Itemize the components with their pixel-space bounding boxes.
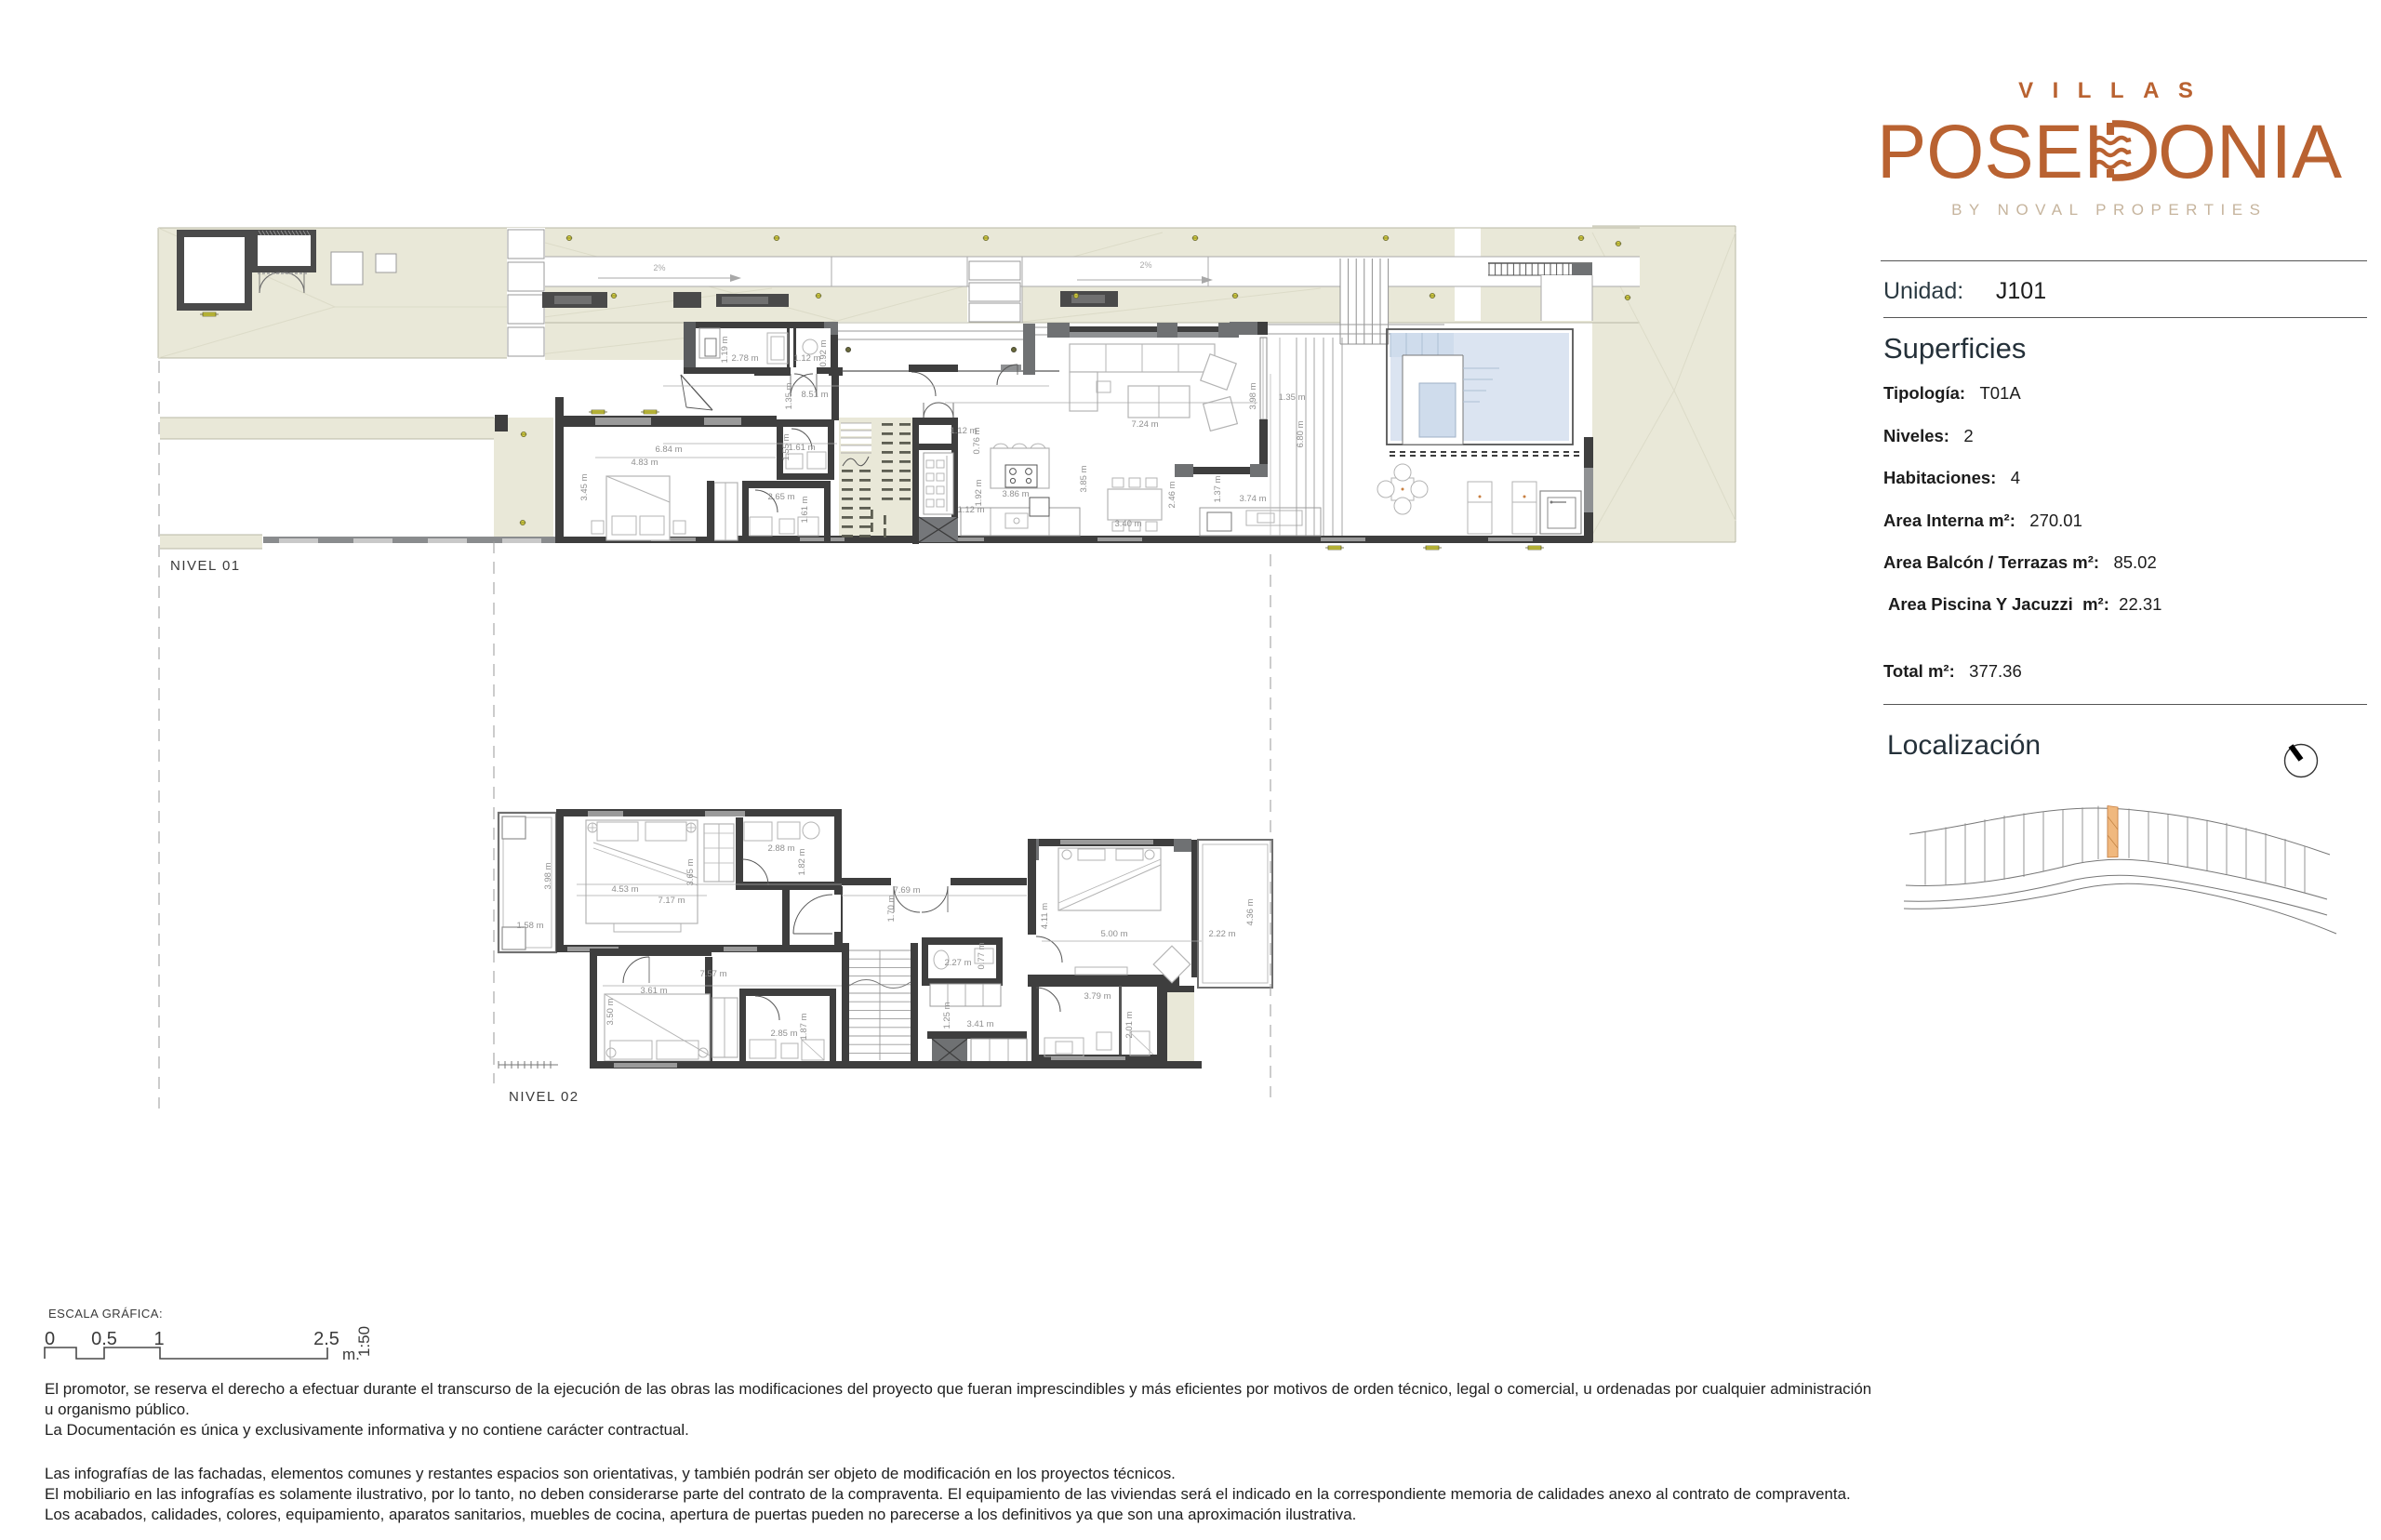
- svg-text:1.55 m: 1.55 m: [781, 433, 791, 460]
- svg-text:2%: 2%: [653, 263, 665, 272]
- svg-text:1.87 m: 1.87 m: [799, 1013, 809, 1040]
- svg-text:3.79 m: 3.79 m: [1084, 991, 1111, 1002]
- svg-text:2%: 2%: [1139, 260, 1151, 270]
- svg-text:3.85 m: 3.85 m: [1079, 465, 1089, 492]
- svg-text:1.12 m: 1.12 m: [950, 426, 977, 436]
- svg-text:2.5: 2.5: [313, 1329, 339, 1349]
- svg-text:3.74 m: 3.74 m: [1239, 494, 1266, 504]
- svg-text:1.61 m: 1.61 m: [800, 496, 810, 523]
- svg-text:1:50: 1:50: [355, 1326, 373, 1357]
- svg-text:7.69 m: 7.69 m: [893, 885, 920, 896]
- svg-text:POSEI: POSEI: [1877, 113, 2104, 192]
- svg-text:2.78 m: 2.78 m: [731, 353, 758, 364]
- svg-text:ONIA: ONIA: [2158, 113, 2342, 192]
- svg-text:0.5: 0.5: [91, 1329, 117, 1349]
- svg-text:0: 0: [45, 1329, 55, 1349]
- svg-text:1.58 m: 1.58 m: [516, 921, 543, 931]
- svg-text:4.83 m: 4.83 m: [631, 458, 658, 468]
- svg-text:2.65 m: 2.65 m: [767, 492, 794, 502]
- svg-text:4.36 m: 4.36 m: [1245, 898, 1256, 925]
- svg-text:1.92 m: 1.92 m: [974, 479, 984, 506]
- svg-text:3.98 m: 3.98 m: [543, 862, 553, 889]
- svg-text:7.57 m: 7.57 m: [699, 969, 726, 979]
- svg-text:3.65 m: 3.65 m: [685, 858, 696, 885]
- svg-text:2.88 m: 2.88 m: [767, 843, 794, 854]
- svg-text:1: 1: [153, 1329, 164, 1349]
- svg-text:1.70 m: 1.70 m: [886, 895, 897, 922]
- svg-text:4.11 m: 4.11 m: [1040, 903, 1050, 929]
- svg-text:1.35 m: 1.35 m: [1278, 392, 1305, 403]
- svg-text:7.17 m: 7.17 m: [658, 896, 685, 906]
- svg-text:3.41 m: 3.41 m: [966, 1019, 993, 1029]
- svg-text:3.61 m: 3.61 m: [640, 986, 667, 996]
- svg-text:8.51 m: 8.51 m: [801, 390, 828, 400]
- svg-text:1.25 m: 1.25 m: [942, 1002, 952, 1029]
- svg-text:0.92 m: 0.92 m: [818, 339, 829, 366]
- svg-text:1.19 m: 1.19 m: [720, 336, 730, 363]
- svg-text:3.40 m: 3.40 m: [1114, 519, 1141, 529]
- svg-text:1.37 m: 1.37 m: [1213, 475, 1223, 502]
- svg-text:2.27 m: 2.27 m: [944, 958, 971, 968]
- svg-text:2.46 m: 2.46 m: [1167, 481, 1177, 508]
- svg-text:2.01 m: 2.01 m: [1124, 1011, 1135, 1038]
- svg-text:1.12 m: 1.12 m: [793, 353, 820, 364]
- svg-text:5.00 m: 5.00 m: [1100, 929, 1127, 939]
- svg-text:4.53 m: 4.53 m: [611, 884, 638, 895]
- svg-text:0.77 m: 0.77 m: [977, 942, 987, 969]
- svg-text:2.85 m: 2.85 m: [770, 1029, 797, 1039]
- svg-text:3.45 m: 3.45 m: [579, 473, 590, 500]
- svg-text:6.80 m: 6.80 m: [1296, 420, 1306, 447]
- svg-text:3.98 m: 3.98 m: [1248, 382, 1258, 409]
- svg-text:1.82 m: 1.82 m: [797, 848, 807, 875]
- svg-text:1.35 m: 1.35 m: [784, 382, 794, 409]
- svg-text:1.12 m: 1.12 m: [957, 505, 984, 515]
- svg-text:3.86 m: 3.86 m: [1002, 489, 1029, 499]
- svg-text:7.24 m: 7.24 m: [1131, 419, 1158, 430]
- svg-text:6.84 m: 6.84 m: [655, 445, 682, 455]
- svg-text:ESCALA GRÁFICA:: ESCALA GRÁFICA:: [48, 1307, 163, 1321]
- svg-text:1.61 m: 1.61 m: [788, 443, 815, 453]
- svg-text:3.50 m: 3.50 m: [605, 998, 616, 1025]
- svg-text:2.22 m: 2.22 m: [1208, 929, 1235, 939]
